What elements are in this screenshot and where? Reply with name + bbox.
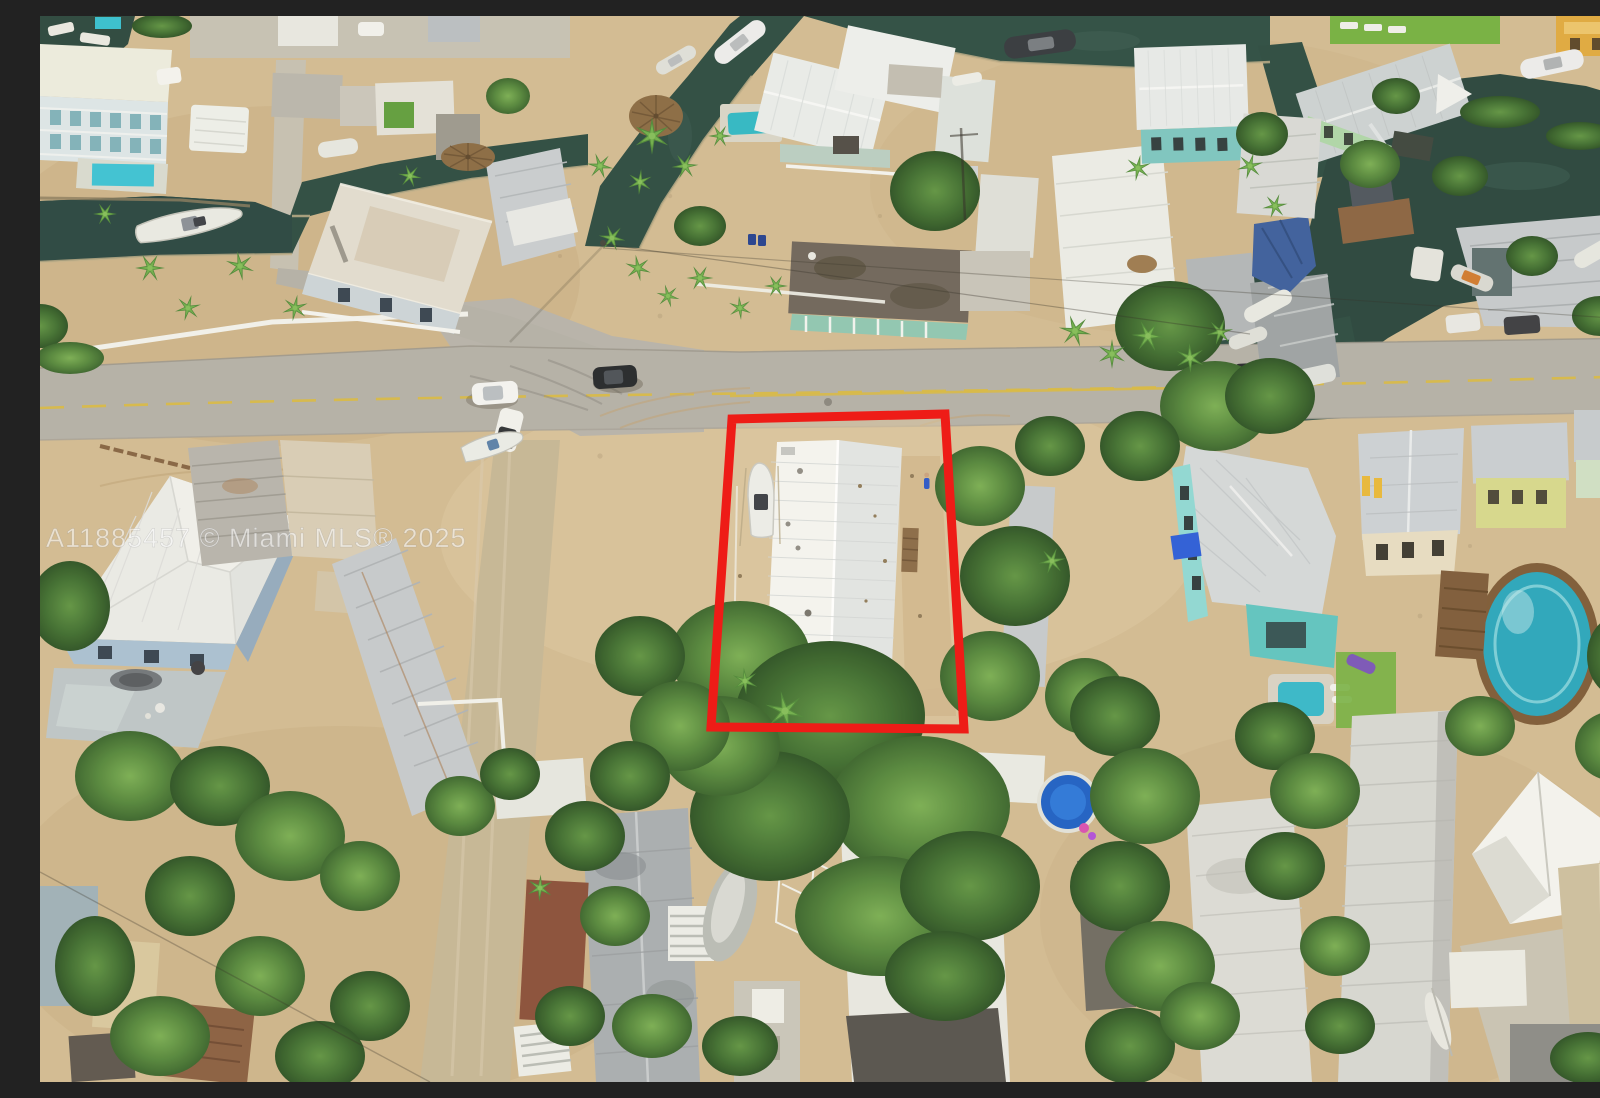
mls-watermark: A11885457 © Miami MLS® 2025 — [46, 523, 467, 553]
aerial-listing-photo: A11885457 © Miami MLS® 2025 — [40, 16, 1600, 1082]
